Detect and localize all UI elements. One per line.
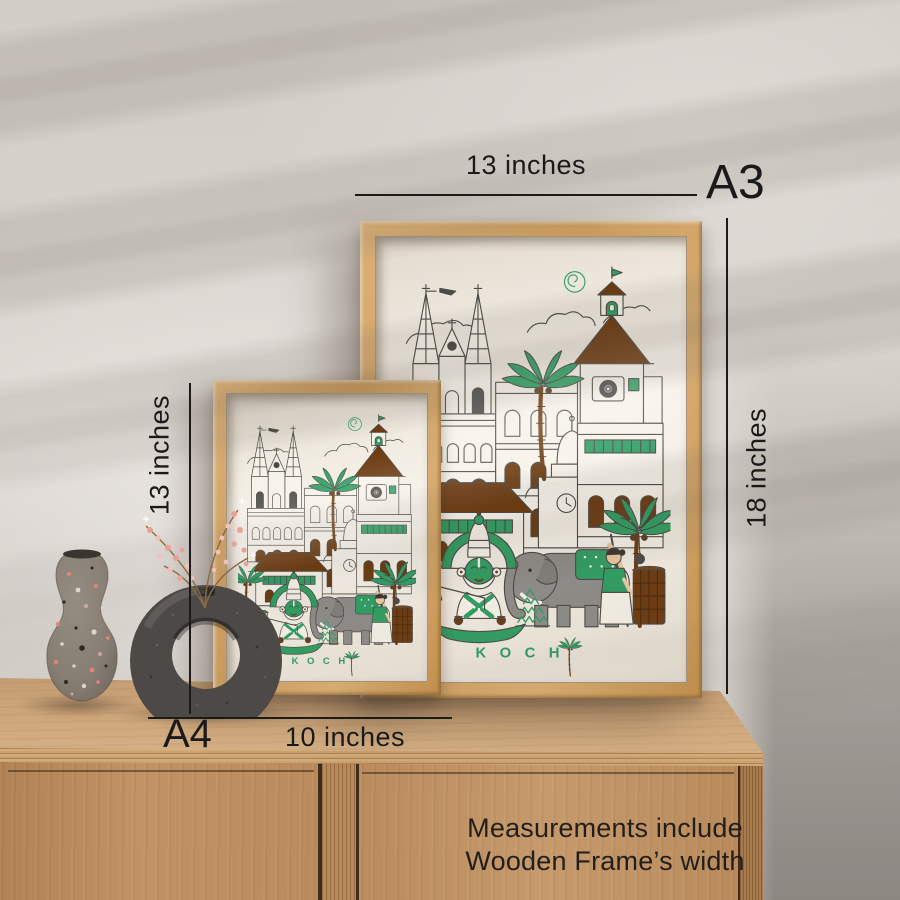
a3-height-label: 18 inches [742, 408, 773, 528]
a3-width-line [355, 194, 697, 196]
a3-width-label: 13 inches [355, 150, 697, 181]
door-inset-line [8, 770, 314, 772]
cabinet-center-stile [322, 762, 356, 900]
cabinet-door-seam [356, 762, 359, 900]
measurement-note-line2: Wooden Frame’s width [430, 845, 780, 878]
product-mockup-scene: 13 inches A3 18 inches 13 inches A4 10 i… [0, 0, 900, 900]
a4-width-line [148, 717, 452, 719]
door-inset-line [362, 772, 734, 774]
a3-size-label: A3 [706, 155, 765, 210]
a4-width-label: 10 inches [240, 722, 450, 753]
measurement-note: Measurements include Wooden Frame’s widt… [430, 812, 780, 878]
a4-height-line [189, 383, 191, 714]
a4-height-label: 13 inches [145, 395, 176, 515]
a3-height-line [726, 218, 728, 694]
terrazzo-vase [34, 546, 130, 708]
measurement-note-line1: Measurements include [430, 812, 780, 845]
